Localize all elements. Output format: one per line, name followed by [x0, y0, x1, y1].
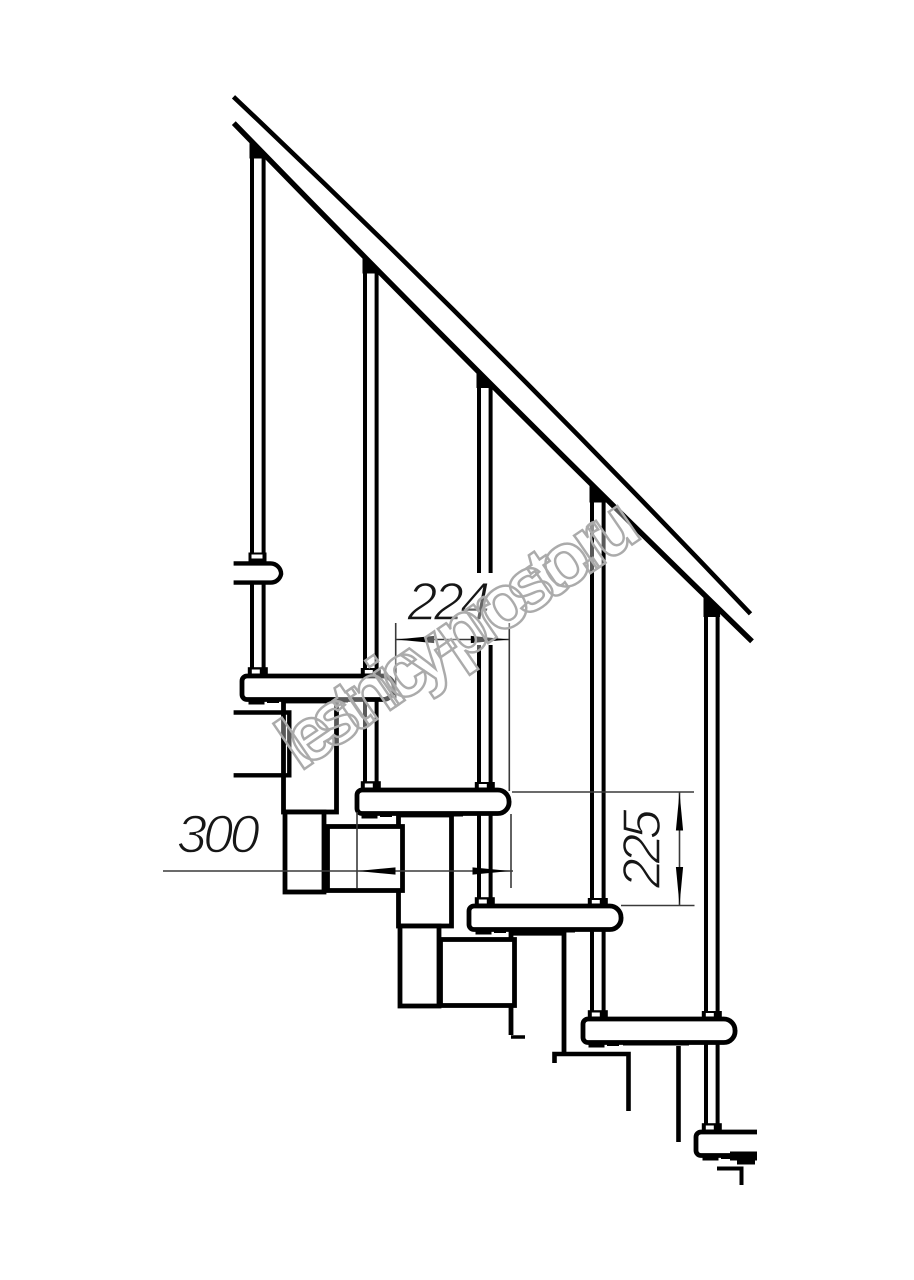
- svg-text:225: 225: [612, 808, 672, 889]
- svg-text:300: 300: [177, 805, 260, 865]
